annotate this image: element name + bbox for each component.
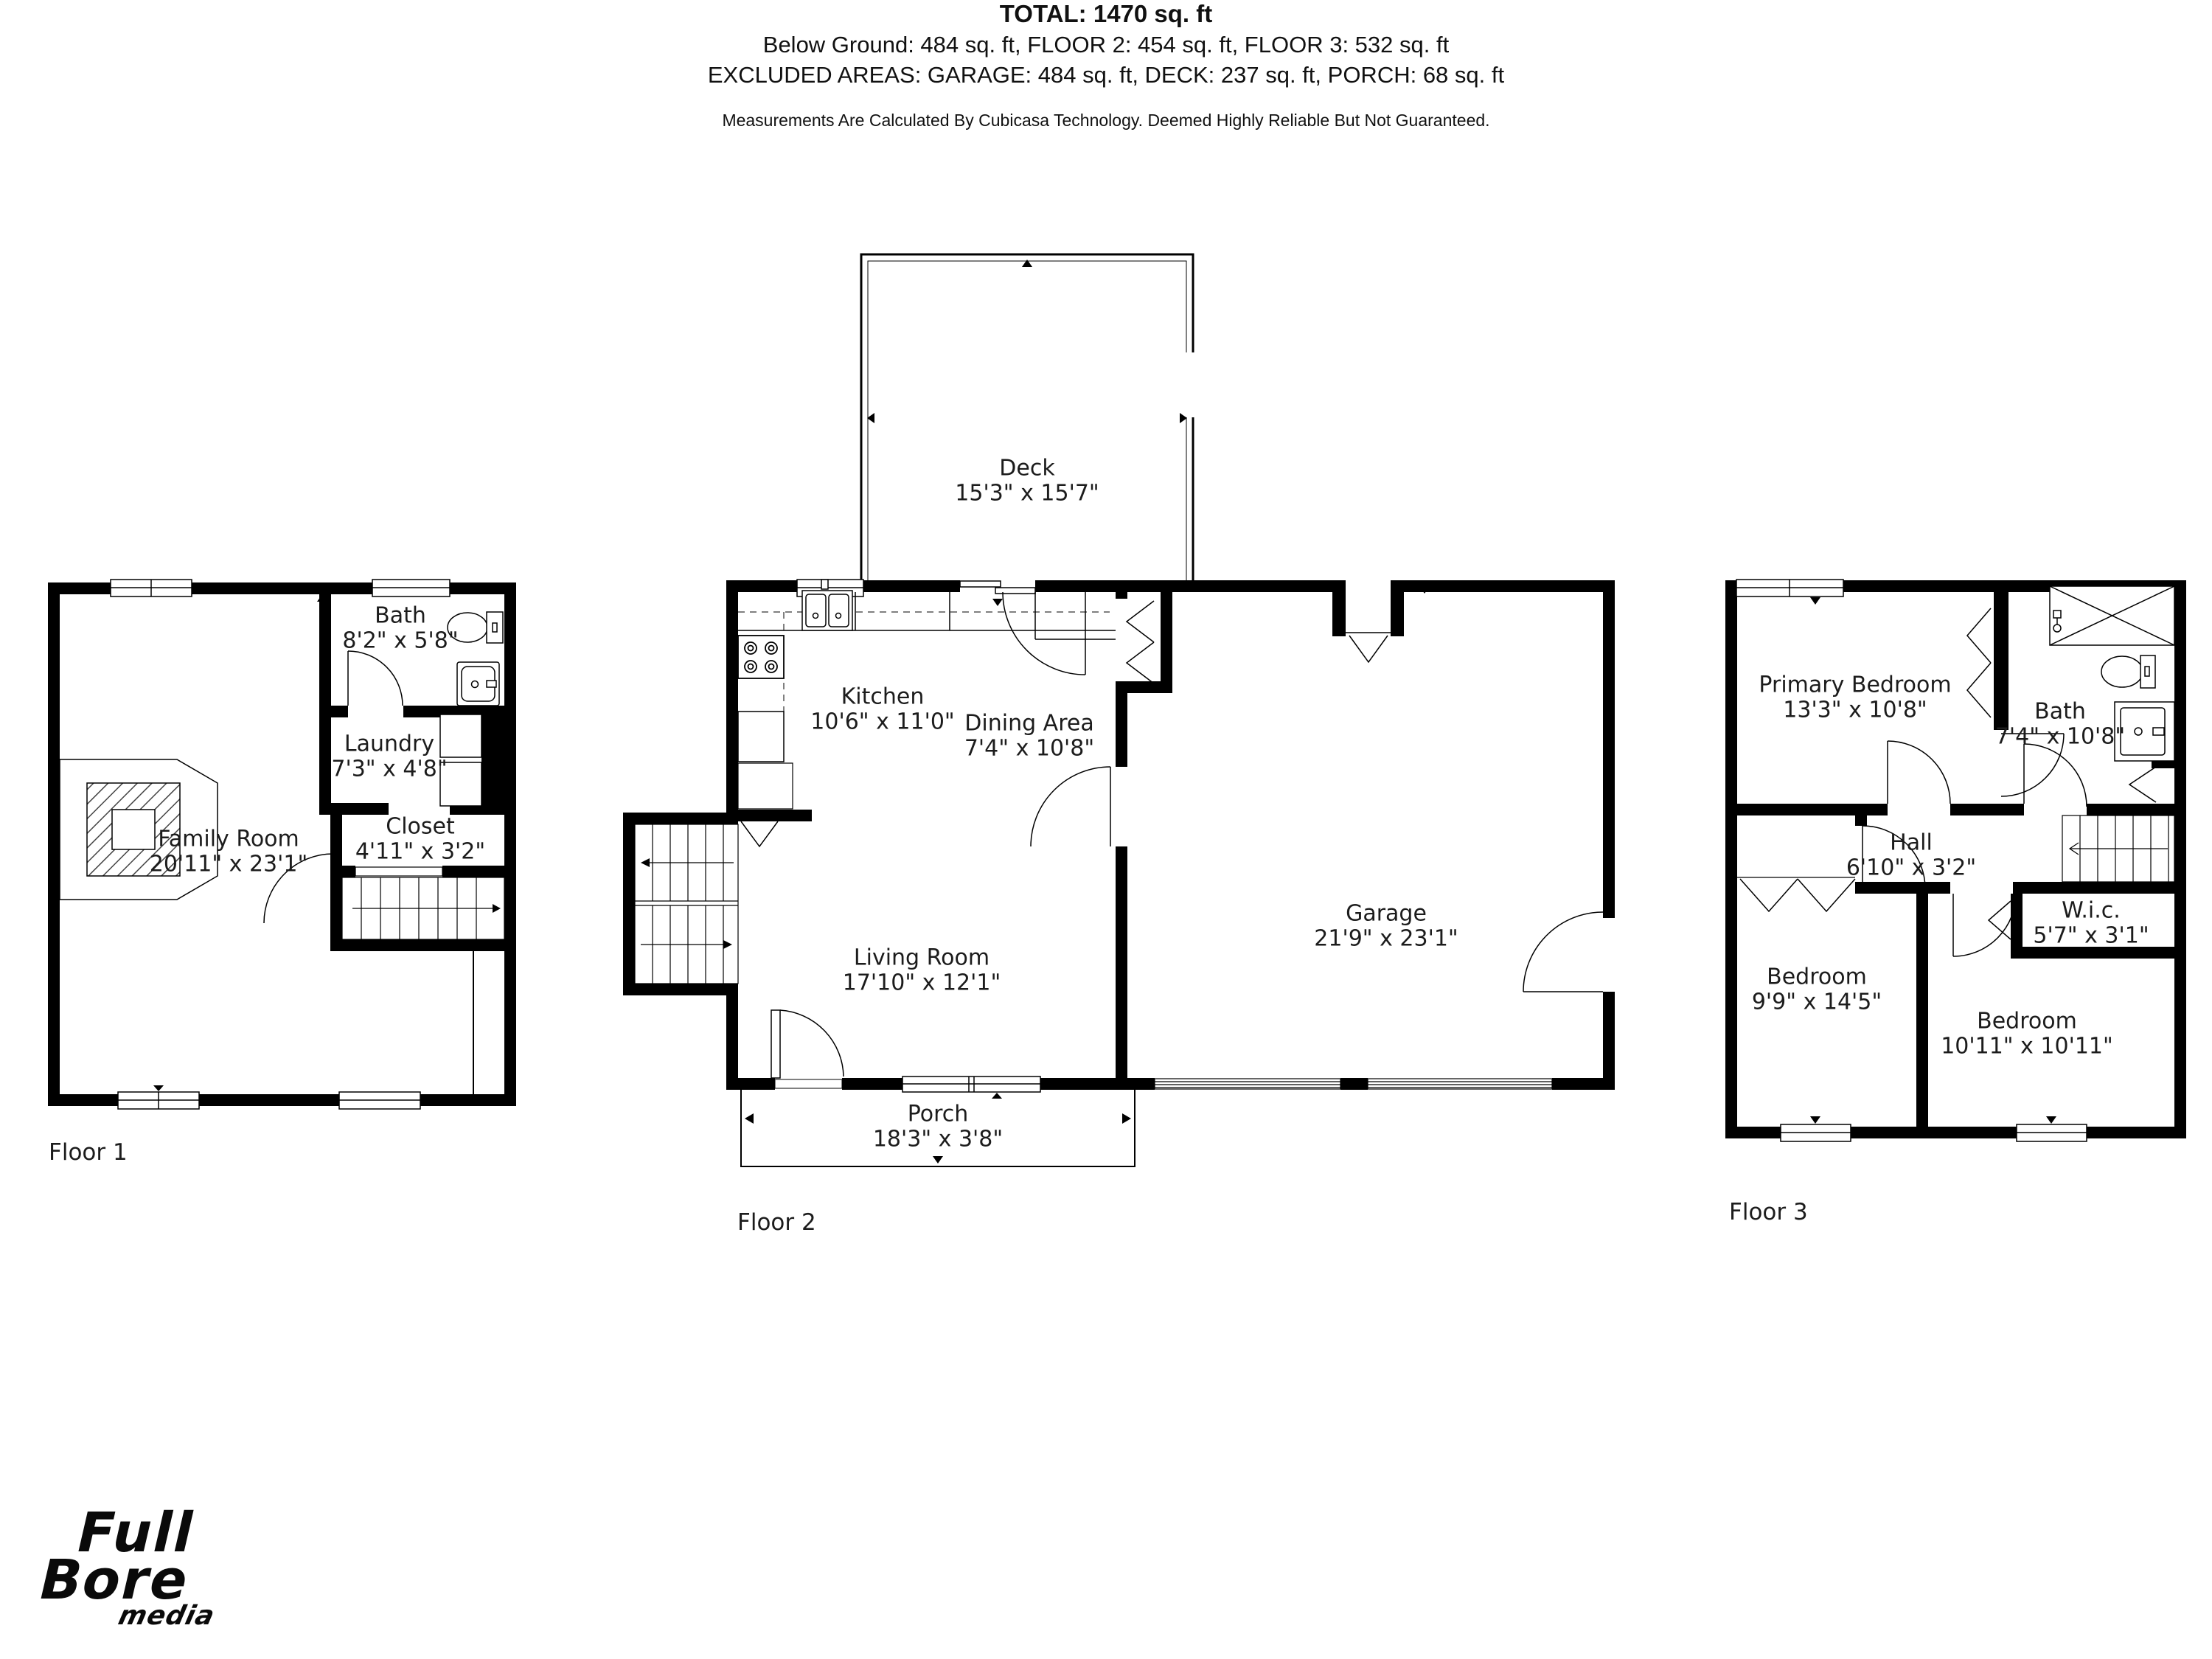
room-label-hall: Hall6'10" x 3'2" <box>1846 830 1976 880</box>
shower-icon <box>2050 586 2174 645</box>
floor-2-plan <box>623 254 1615 1166</box>
summary-block: TOTAL: 1470 sq. ft Below Ground: 484 sq.… <box>0 0 2212 131</box>
room-label-bedroom-right: Bedroom10'11" x 10'11" <box>1941 1009 2113 1058</box>
floor-areas-text: Below Ground: 484 sq. ft, FLOOR 2: 454 s… <box>0 32 2212 58</box>
floorplan-drawing <box>0 0 2212 1659</box>
front-door <box>771 1010 844 1088</box>
room-label-bath-f3: Bath7'4" x 10'8" <box>1995 699 2125 748</box>
room-label-living-room: Living Room17'10" x 12'1" <box>843 945 1001 995</box>
sink-icon <box>457 662 499 706</box>
floor-2-caption: Floor 2 <box>737 1209 816 1236</box>
bifold-door <box>1967 608 1991 717</box>
window <box>1736 580 1843 597</box>
primary-door-arc <box>1888 741 1950 804</box>
garage-entry-niche <box>1346 633 1391 662</box>
window <box>1781 1124 1851 1141</box>
sliding-door <box>960 581 1035 594</box>
garage-door-arc <box>1031 767 1110 846</box>
floorplan-page: Bath8'2" x 5'8" Laundry7'3" x 4'8" Close… <box>0 0 2212 1659</box>
room-label-closet: Closet4'11" x 3'2" <box>355 814 485 863</box>
deck-door-arc <box>1003 592 1085 675</box>
logo-word-bore: Bore <box>35 1557 228 1604</box>
floor-3-caption: Floor 3 <box>1729 1199 1808 1225</box>
closet-door <box>355 867 442 876</box>
side-door-arc <box>1523 912 1603 992</box>
room-label-wic: W.i.c.5'7" x 3'1" <box>2033 898 2149 947</box>
room-label-primary-bedroom: Primary Bedroom13'3" x 10'8" <box>1759 672 1951 722</box>
excluded-areas-text: EXCLUDED AREAS: GARAGE: 484 sq. ft, DECK… <box>0 62 2212 88</box>
window <box>339 1092 420 1109</box>
total-area-text: TOTAL: 1470 sq. ft <box>0 0 2212 28</box>
bath-door-arc <box>348 651 403 706</box>
floor-1-caption: Floor 1 <box>49 1139 128 1166</box>
deck-outline <box>861 254 1193 582</box>
closet-bifold-doors <box>1737 877 1855 911</box>
window <box>111 580 192 597</box>
room-label-bath-f1: Bath8'2" x 5'8" <box>342 603 458 653</box>
garage-door <box>1368 1079 1552 1089</box>
pantry-cabinet <box>738 763 793 809</box>
window <box>2017 1124 2087 1141</box>
window <box>902 1077 1040 1092</box>
room-label-kitchen: Kitchen10'6" x 11'0" <box>810 684 954 734</box>
stove-icon <box>738 636 784 678</box>
room-label-dining-area: Dining Area7'4" x 10'8" <box>964 711 1094 760</box>
bifold-door <box>1127 601 1154 684</box>
room-label-garage: Garage21'9" x 23'1" <box>1314 901 1458 950</box>
logo-word-media: media <box>116 1605 217 1628</box>
room-label-bedroom-left: Bedroom9'9" x 14'5" <box>1752 964 1882 1014</box>
window <box>372 580 450 597</box>
bedroom-door-arc <box>1953 894 2016 956</box>
disclaimer-text: Measurements Are Calculated By Cubicasa … <box>0 111 2212 131</box>
garage-door <box>1155 1079 1340 1089</box>
stairs-floor-3 <box>2062 815 2174 882</box>
window <box>118 1092 199 1109</box>
fridge-icon <box>738 712 784 762</box>
bifold-door <box>1989 901 2011 939</box>
stairs-floor-2 <box>635 824 738 984</box>
bifold-door <box>2129 767 2156 802</box>
room-label-porch: Porch18'3" x 3'8" <box>873 1102 1003 1151</box>
brand-logo: Full Bore media <box>29 1510 239 1628</box>
room-label-laundry: Laundry7'3" x 4'8" <box>331 731 447 781</box>
room-label-deck: Deck15'3" x 15'7" <box>955 456 1099 505</box>
toilet-icon <box>2101 655 2155 688</box>
stairs-floor-1 <box>342 877 504 939</box>
room-label-family-room: Family Room20'11" x 23'1" <box>150 827 308 876</box>
